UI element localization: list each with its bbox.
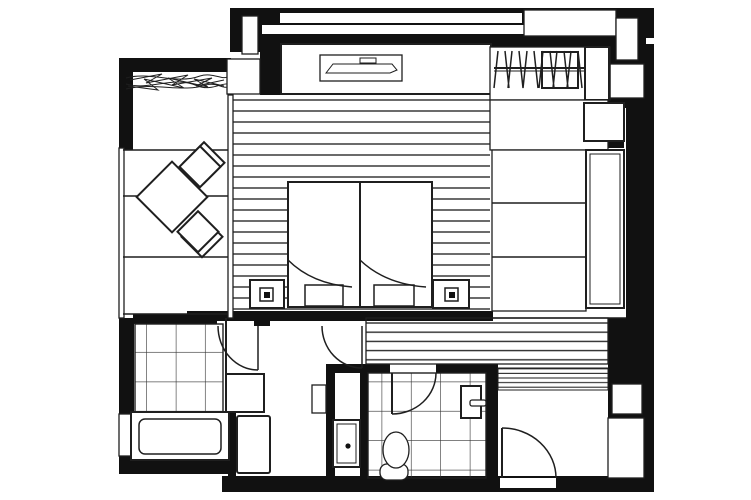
wall-bathroom-top xyxy=(133,314,217,324)
wall-top-right-step xyxy=(643,8,654,38)
shelf-sections xyxy=(492,150,586,311)
wall-toilet-right xyxy=(486,364,498,478)
bathtub xyxy=(131,412,229,460)
window-slot-left-pillar xyxy=(242,16,258,54)
wall-toilet-left xyxy=(360,364,368,478)
bathroom-tile-floor xyxy=(135,324,223,412)
wall-shelf xyxy=(312,385,326,413)
long-counter xyxy=(586,150,624,308)
floor-plan xyxy=(0,0,751,500)
doormat-stripes xyxy=(498,368,608,390)
window-slot-inner xyxy=(262,25,524,34)
wall-bath-left xyxy=(119,318,134,414)
service-box-large xyxy=(608,418,644,478)
closet xyxy=(490,47,610,100)
floor-plan-drawing xyxy=(0,0,751,500)
washing-machine xyxy=(237,416,270,473)
service-box-small xyxy=(612,384,642,414)
cabinet-compartment xyxy=(333,420,360,467)
entry-threshold-gap xyxy=(500,478,556,488)
wall-balcony-top xyxy=(119,58,231,72)
desk-counter xyxy=(492,150,624,311)
balcony-corner-box xyxy=(227,59,260,94)
wall-balcony-left xyxy=(119,58,133,150)
nightstand-left xyxy=(250,280,284,308)
wall-bath-door-stub xyxy=(254,314,270,326)
planting-texture xyxy=(126,74,227,90)
closet-side-panel xyxy=(585,47,609,100)
window-slot-outer xyxy=(280,13,522,23)
closet-top-white-box xyxy=(524,10,616,36)
toilet-room xyxy=(368,373,486,480)
balcony-glass-wall xyxy=(228,95,233,318)
bed-left xyxy=(288,182,360,307)
right-pillar-box xyxy=(610,64,644,98)
wall-toilet-top-b xyxy=(436,364,492,373)
entrance-door-swing xyxy=(502,428,556,478)
bed-right xyxy=(360,182,432,307)
nightstand-right xyxy=(433,280,469,308)
balcony-railing xyxy=(119,148,124,318)
washroom-door-swing xyxy=(322,326,362,368)
wood-striped-floor xyxy=(366,318,608,364)
right-pillar-slot xyxy=(616,18,638,60)
cabinet-square xyxy=(584,103,624,141)
door-knob xyxy=(345,443,350,448)
storage-room xyxy=(490,100,624,150)
fixture-handle xyxy=(470,400,486,406)
toilet-bowl xyxy=(383,432,409,468)
bathroom-door-swing xyxy=(218,326,258,370)
step-square xyxy=(226,374,264,412)
wall-toilet-top-a xyxy=(368,364,390,373)
entry xyxy=(500,384,644,488)
